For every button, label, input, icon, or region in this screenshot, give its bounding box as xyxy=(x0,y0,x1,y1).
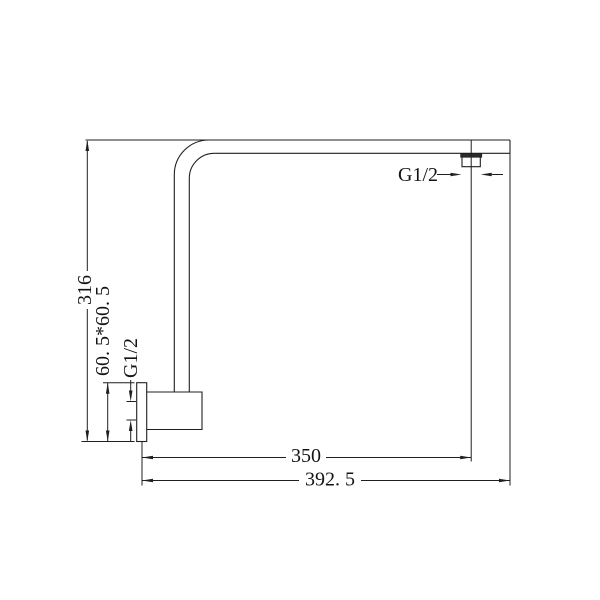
dim-316-arrow-up xyxy=(86,140,90,151)
dim-350-label: 350 xyxy=(291,445,321,467)
dim-3925-arrow-left xyxy=(142,479,153,483)
dim-350-arrow-left xyxy=(142,456,153,460)
dim-605-arrow-up xyxy=(106,383,110,394)
dim-inlet-arrow-down xyxy=(129,391,133,402)
riser-inner-contour xyxy=(189,153,214,392)
dim-flange-size-label: 60. 5*60. 5 xyxy=(92,286,114,376)
dim-3925-arrow-right xyxy=(499,479,510,483)
dim-outlet-thread: G1/2 xyxy=(398,164,503,186)
dim-overall-reach: 392. 5 xyxy=(142,153,510,490)
riser-outer-contour xyxy=(174,140,209,392)
wall-flange xyxy=(127,383,203,442)
dim-350-arrow-right xyxy=(460,456,471,460)
dim-outlet-arrow-left xyxy=(481,173,492,177)
dim-inlet-arrow-up xyxy=(129,420,133,431)
dim-inlet-thread: G1/2 xyxy=(120,338,142,441)
dim-outlet-thread-label: G1/2 xyxy=(398,164,438,186)
dim-316-arrow-down xyxy=(86,431,90,442)
dim-605-arrow-down xyxy=(106,431,110,442)
shower-arm-body xyxy=(86,140,511,392)
dim-inlet-thread-label: G1/2 xyxy=(120,338,142,378)
dim-3925-label: 392. 5 xyxy=(305,469,355,491)
outlet-fitting xyxy=(461,140,482,462)
flange-plate xyxy=(137,383,147,442)
base-block xyxy=(147,392,202,430)
technical-drawing-canvas: 316 60. 5*60. 5 G1/2 G1/2 350 xyxy=(0,0,600,600)
dim-outlet-arrow-right xyxy=(451,173,462,177)
